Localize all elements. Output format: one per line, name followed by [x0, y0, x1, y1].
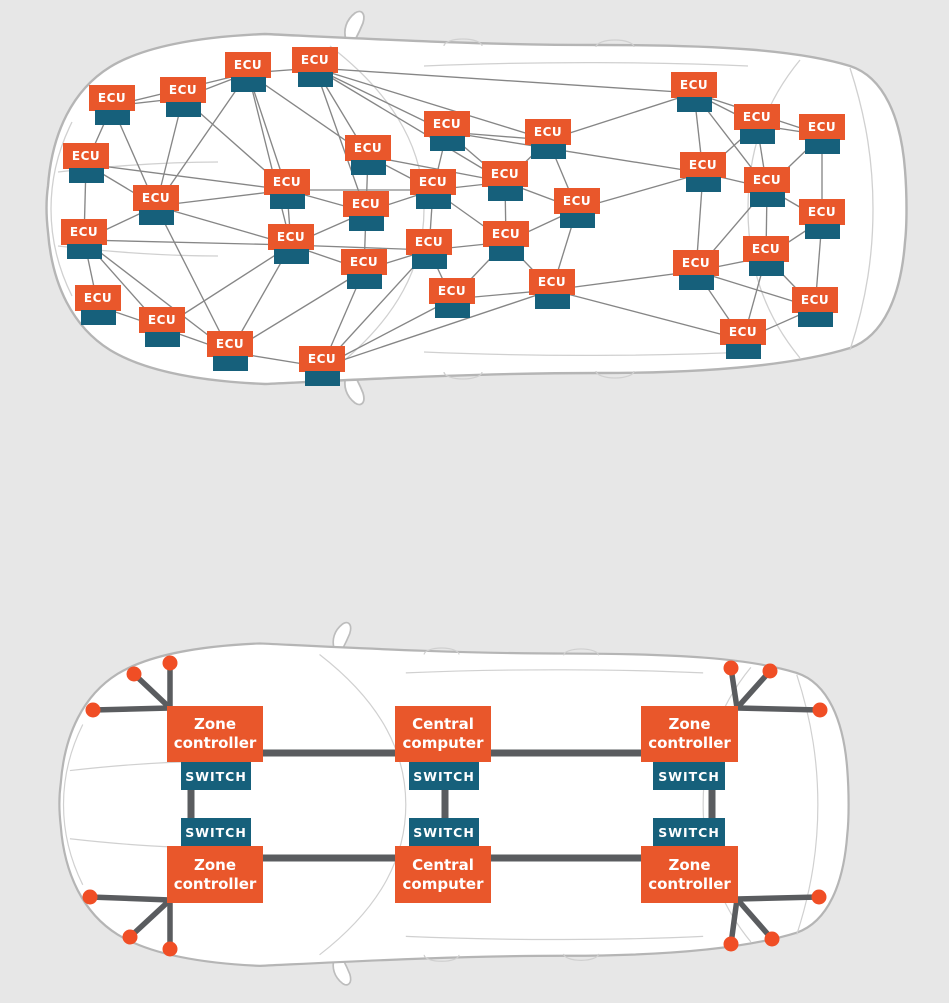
sensor-link [737, 708, 820, 710]
sensor-dot [123, 930, 138, 945]
sensor-dot [813, 703, 828, 718]
sensor-link [737, 897, 819, 899]
sensor-dot [724, 937, 739, 952]
sensor-dot [127, 667, 142, 682]
sensor-dot [86, 703, 101, 718]
sensor-dot [163, 942, 178, 957]
diagram-canvas [0, 0, 949, 1003]
sensor-dot [763, 664, 778, 679]
architecture-comparison-figure: ECUECUECUECUECUECUECUECUECUECUECUECUECUE… [0, 0, 949, 1003]
car-outline-distributed [47, 11, 907, 404]
sensor-link [93, 708, 170, 710]
sensor-dot [83, 890, 98, 905]
sensor-link [90, 897, 170, 900]
sensor-dot [765, 932, 780, 947]
sensor-dot [812, 890, 827, 905]
sensor-dot [724, 661, 739, 676]
sensor-dot [163, 656, 178, 671]
